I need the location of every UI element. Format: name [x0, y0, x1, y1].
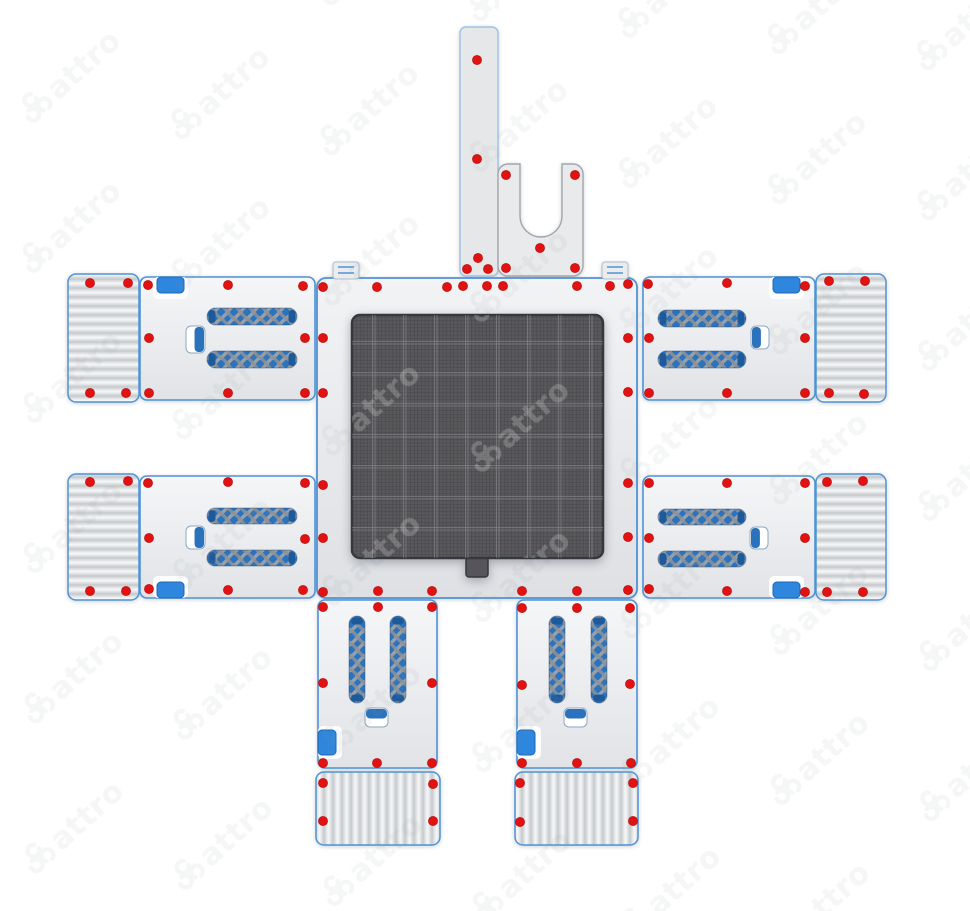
grip-slot-end: [392, 618, 404, 625]
watermark-logo-curl: [767, 23, 784, 40]
watermark-logo-curl: [325, 140, 340, 155]
fastener-dot: [223, 280, 232, 289]
grip-slot-end: [593, 695, 605, 702]
handle-slot: [564, 708, 587, 727]
watermark-logo-curl: [172, 258, 189, 275]
fastener-dot: [858, 476, 867, 485]
watermark-logo-curl: [171, 108, 188, 125]
watermark-logo-curl: [24, 692, 41, 709]
edge-tab-body: [773, 277, 800, 293]
grip-slot-opening: [658, 351, 746, 368]
watermark-logo-curl: [923, 505, 938, 520]
fastener-dot: [300, 388, 309, 397]
grip-slot: [349, 616, 365, 703]
fastener-dot: [427, 586, 436, 595]
watermark-logo-curl: [328, 890, 343, 905]
blue-edge-tab: [769, 277, 804, 299]
fastener-dot: [644, 478, 653, 487]
watermark-text: attro: [786, 104, 874, 188]
fastener-dot: [318, 480, 327, 489]
fastener-dot: [427, 602, 436, 611]
fastener-dot: [858, 587, 867, 596]
handle-slot-blue-insert: [751, 528, 760, 548]
watermark-text: attro: [938, 721, 970, 805]
grip-slot-end: [660, 353, 667, 366]
grip-slot-end: [738, 353, 745, 366]
fastener-dot: [625, 679, 634, 688]
fastener-dot: [428, 779, 437, 788]
handle-slot: [751, 326, 769, 349]
fastener-dot: [859, 389, 868, 398]
watermark-logo-curl: [178, 724, 193, 739]
watermark-logo-curl: [172, 408, 189, 425]
fastener-dot: [85, 278, 94, 287]
watermark-logo-curl: [23, 392, 40, 409]
watermark-text: attro: [637, 88, 725, 172]
watermark-logo-curl: [771, 774, 788, 791]
watermark-logo-curl: [177, 424, 192, 439]
fastener-dot: [300, 478, 309, 487]
fastener-dot: [482, 281, 491, 290]
fastener-dot: [722, 586, 731, 595]
handle-slot-blue-insert: [195, 327, 204, 352]
watermark-tile: attro: [16, 623, 130, 731]
watermark-text: attro: [637, 0, 725, 22]
watermark-text: attro: [41, 173, 129, 257]
watermark-text: attro: [339, 56, 427, 140]
fastener-dot: [123, 476, 132, 485]
fastener-dot: [800, 478, 809, 487]
fastener-dot: [722, 278, 731, 287]
watermark-logo-curl: [472, 741, 489, 758]
fastener-dot: [572, 758, 581, 767]
fastener-dot: [144, 533, 153, 542]
fastener-dot: [300, 534, 309, 543]
fastener-dot: [517, 603, 526, 612]
fastener-dot: [427, 678, 436, 687]
watermark-logo-curl: [922, 355, 937, 370]
fastener-dot: [144, 584, 153, 593]
fastener-dot: [223, 388, 232, 397]
watermark-tile: attro: [911, 421, 970, 529]
watermark-logo-curl: [918, 340, 935, 357]
fastener-dot: [570, 263, 579, 272]
fastener-dot: [623, 478, 632, 487]
watermark-logo-curl: [25, 842, 42, 859]
fastener-dot: [144, 333, 153, 342]
watermark-tile: attro: [760, 104, 874, 212]
grip-slot: [207, 308, 297, 325]
watermark-logo-curl: [770, 624, 787, 641]
fastener-dot: [318, 533, 327, 542]
grip-slot-end: [593, 618, 605, 625]
fastener-dot: [458, 281, 467, 290]
fastener-dot: [501, 170, 510, 179]
watermark-logo-curl: [924, 655, 939, 670]
watermark-tile: attro: [17, 774, 131, 882]
grip-slot-end: [289, 353, 296, 366]
fastener-dot: [628, 816, 637, 825]
watermark-logo-curl: [917, 39, 934, 56]
watermark-tile: attro: [14, 173, 128, 281]
fastener-dot: [822, 477, 831, 486]
fastener-dot: [623, 585, 632, 594]
fastener-dot: [223, 585, 232, 594]
watermark-logo-curl: [919, 640, 936, 657]
watermark-logo-curl: [22, 92, 39, 109]
connector-tab-body: [602, 262, 628, 279]
fastener-dot: [517, 758, 526, 767]
watermark-logo-curl: [473, 6, 488, 21]
fastener-dot: [318, 388, 327, 397]
fastener-dot: [318, 816, 327, 825]
watermark-tile: attro: [312, 56, 426, 164]
watermark-text: attro: [938, 571, 970, 655]
blue-edge-tab: [769, 576, 804, 598]
fastener-dot: [372, 282, 381, 291]
fastener-dot: [535, 243, 544, 252]
watermark-logo-curl: [922, 205, 937, 220]
watermark-tile: attro: [166, 790, 280, 898]
watermark-text: attro: [936, 271, 970, 355]
watermark-text: attro: [936, 121, 970, 205]
fastener-dot: [644, 533, 653, 542]
fastener-dot: [462, 264, 471, 273]
fastener-dot: [373, 602, 382, 611]
grip-slot: [591, 616, 607, 703]
watermark-logo-curl: [921, 55, 936, 70]
watermark-logo-curl: [618, 7, 635, 24]
fastener-dot: [623, 279, 632, 288]
fastener-dot: [572, 281, 581, 290]
fastener-dot: [300, 333, 309, 342]
watermark-text: attro: [638, 388, 726, 472]
fastener-dot: [572, 603, 581, 612]
fastener-dot: [515, 817, 524, 826]
fastener-dot: [144, 388, 153, 397]
watermark-tile: attro: [610, 0, 724, 46]
watermark-logo-curl: [476, 756, 491, 771]
fastener-dot: [143, 478, 152, 487]
fastener-dot: [800, 333, 809, 342]
fastener-dot: [644, 333, 653, 342]
watermark-tile: attro: [909, 0, 970, 78]
handle-slot-blue-insert: [565, 709, 586, 718]
grip-slot-opening: [207, 308, 297, 325]
grip-slot-end: [738, 312, 745, 325]
watermark-tile: attro: [14, 23, 128, 131]
fastener-dot: [85, 388, 94, 397]
watermark-logo-curl: [768, 173, 785, 190]
grip-slot: [658, 509, 746, 525]
product-render-canvas: attroattroattroattroattroattroattroattro…: [0, 0, 970, 911]
watermark-tile: attro: [910, 271, 970, 379]
fastener-dot: [498, 281, 507, 290]
watermark-tile: attro: [763, 855, 877, 911]
edge-tab-body: [773, 582, 800, 598]
fastener-dot: [121, 388, 130, 397]
grip-slot-opening: [591, 616, 607, 703]
fastener-dot: [605, 281, 614, 290]
watermark-logo-curl: [29, 708, 44, 723]
watermark-logo-curl: [772, 189, 787, 204]
grip-slot-end: [660, 511, 667, 523]
watermark-text: attro: [786, 0, 874, 38]
fastener-dot: [800, 388, 809, 397]
watermark-logo-curl: [775, 789, 790, 804]
fastener-dot: [517, 586, 526, 595]
watermark-tile: attro: [763, 705, 877, 813]
fastener-dot: [85, 586, 94, 595]
fastener-dot: [644, 388, 653, 397]
fastener-dot: [515, 778, 524, 787]
watermark-logo-curl: [924, 805, 939, 820]
fastener-dot: [800, 281, 809, 290]
watermark-text: attro: [487, 0, 575, 6]
fastener-dot: [623, 387, 632, 396]
fastener-dot: [473, 253, 482, 262]
fastener-dot: [643, 279, 652, 288]
watermark-text: attro: [193, 790, 281, 874]
grip-slot-end: [289, 552, 296, 564]
watermark-logo-curl: [774, 639, 789, 654]
watermark-logo-curl: [476, 606, 491, 621]
watermark-text: attro: [640, 839, 728, 911]
watermark-logo: [313, 0, 354, 8]
fastener-dot: [860, 276, 869, 285]
fastener-dot: [318, 282, 327, 291]
fastener-dot: [800, 587, 809, 596]
watermark-text: attro: [640, 689, 728, 773]
watermark-text: attro: [789, 705, 877, 789]
watermark-tile: attro: [909, 121, 970, 229]
fastener-dot: [318, 587, 327, 596]
watermark-logo-curl: [27, 257, 42, 272]
fastener-dot: [824, 388, 833, 397]
grip-slot-end: [660, 553, 667, 565]
grip-slot-end: [738, 553, 745, 565]
fastener-dot: [623, 532, 632, 541]
fastener-dot: [570, 170, 579, 179]
grip-slot-end: [738, 511, 745, 523]
watermark-logo-curl: [174, 709, 191, 726]
watermark-logo-curl: [324, 0, 339, 4]
fastener-dot: [318, 678, 327, 687]
fastener-dot: [318, 602, 327, 611]
watermark-logo-curl: [26, 107, 41, 122]
fastener-dot: [121, 586, 130, 595]
fastener-dot: [123, 278, 132, 287]
fastener-dot: [722, 478, 731, 487]
fastener-dot: [85, 477, 94, 486]
fastener-dot: [318, 758, 327, 767]
watermark-logo-curl: [772, 38, 787, 53]
fastener-dot: [625, 603, 634, 612]
watermark-text: attro: [937, 421, 970, 505]
watermark-logo-curl: [179, 874, 194, 889]
watermark-text: attro: [43, 774, 131, 858]
fastener-dot: [442, 282, 451, 291]
fastener-dot: [298, 585, 307, 594]
watermark-text: attro: [487, 0, 575, 6]
watermark-tile: attro: [614, 839, 728, 911]
watermark-tile: attro: [312, 0, 426, 13]
fastener-dot: [373, 586, 382, 595]
fastener-dot: [372, 758, 381, 767]
watermark-logo-curl: [22, 242, 39, 259]
watermark-text: attro: [488, 72, 576, 156]
grip-slot-end: [209, 510, 216, 522]
watermark-text: attro: [40, 23, 128, 107]
fastener-dot: [822, 587, 831, 596]
watermark-logo-curl: [24, 542, 41, 559]
fastener-dot: [517, 680, 526, 689]
fastener-dot: [483, 264, 492, 273]
fastener-dot: [572, 586, 581, 595]
watermark-logo-curl: [920, 790, 937, 807]
fastener-dot: [472, 154, 481, 163]
fastener-dot: [472, 55, 481, 64]
grip-slot-end: [551, 618, 563, 625]
watermark-logo-curl: [473, 891, 490, 908]
fastener-dot: [143, 280, 152, 289]
watermark-logo-curl: [175, 123, 190, 138]
fastener-dot: [318, 333, 327, 342]
fastener-dot: [824, 276, 833, 285]
watermark-logo-curl: [919, 490, 936, 507]
rib-texture: [515, 772, 638, 845]
fastener-dot: [501, 263, 510, 272]
fastener-dot: [626, 758, 635, 767]
watermark-logo-curl: [320, 124, 337, 141]
watermark-text: attro: [189, 39, 277, 123]
fastener-dot: [644, 584, 653, 593]
fastener-dot: [427, 758, 436, 767]
grip-slot-end: [289, 510, 296, 522]
watermark-logo-curl: [323, 875, 340, 892]
fastener-dot: [428, 816, 437, 825]
watermark-tile: attro: [163, 39, 277, 147]
watermark-logo-curl: [623, 172, 638, 187]
grip-slot-end: [209, 353, 216, 366]
watermark-logo-curl: [619, 157, 636, 174]
watermark-text: attro: [192, 640, 280, 724]
watermark-logo: [462, 0, 503, 25]
watermark-logo-curl: [917, 190, 934, 207]
fastener-dot: [223, 477, 232, 486]
watermark-logo-curl: [28, 557, 43, 572]
cap-bottom-right: [515, 772, 638, 845]
watermark-logo-curl: [623, 22, 638, 37]
fastener-dot: [623, 333, 632, 342]
grip-slot-opening: [349, 616, 365, 703]
watermark-logo-curl: [29, 858, 44, 873]
watermark-text: attro: [790, 855, 878, 911]
watermark-logo-curl: [27, 407, 42, 422]
handle-slot-blue-insert: [752, 327, 761, 348]
watermark-tile: attro: [911, 571, 970, 679]
assembly-top-view: attroattroattroattroattroattroattroattro…: [0, 0, 970, 911]
grip-slot-end: [289, 310, 296, 323]
watermark-tile: attro: [759, 0, 873, 62]
watermark-tile: attro: [461, 0, 575, 29]
fastener-dot: [628, 778, 637, 787]
watermark-tile: attro: [912, 721, 970, 829]
handle-slot: [186, 326, 205, 353]
grip-slot-end: [209, 310, 216, 323]
fastener-dot: [800, 533, 809, 542]
fastener-dot: [318, 778, 327, 787]
connector-tab: [602, 262, 628, 279]
grip-slot: [658, 351, 746, 368]
fastener-dot: [298, 281, 307, 290]
watermark-tile: attro: [611, 88, 725, 196]
watermark-text: attro: [190, 189, 278, 273]
handle-slot: [750, 527, 768, 549]
watermark-text: attro: [43, 623, 131, 707]
watermark-tile: attro: [166, 640, 280, 748]
grip-slot-opening: [658, 509, 746, 525]
watermark-logo-curl: [174, 859, 191, 876]
fastener-dot: [722, 388, 731, 397]
grip-slot-end: [351, 618, 363, 625]
